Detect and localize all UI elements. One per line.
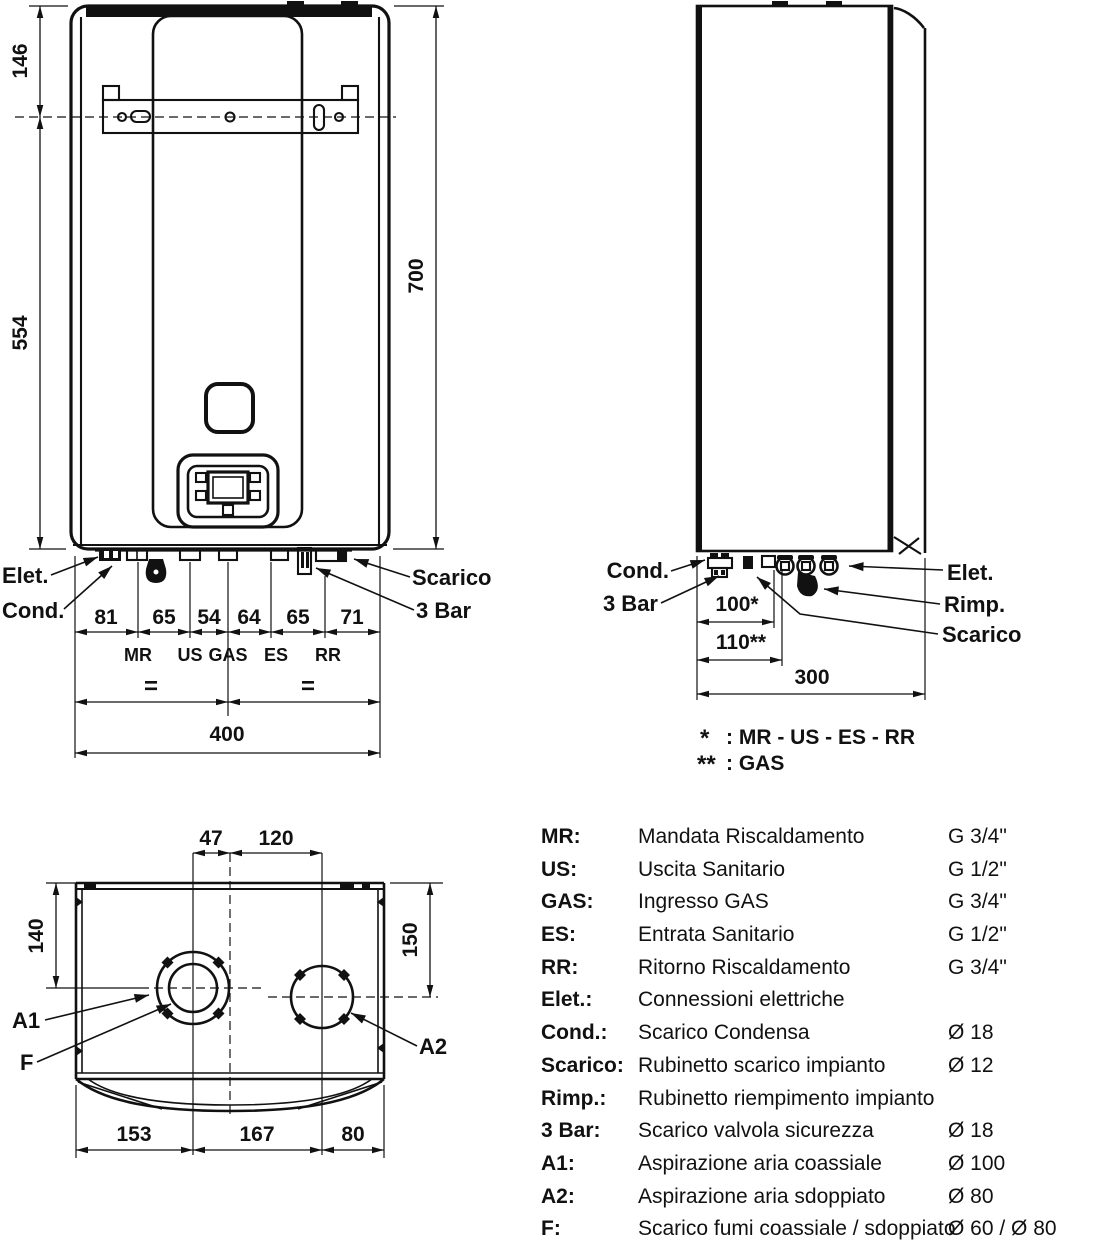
legend-size: Ø 18 (948, 1115, 1098, 1148)
legend-desc: Scarico Condensa (638, 1017, 948, 1050)
side-view: 100* 110** 300 Cond. 3 Bar Elet. Rimp. S… (603, 1, 1022, 778)
callout-3bar: 3 Bar (416, 598, 471, 623)
rimp-tap (797, 572, 818, 596)
legend-desc: Scarico valvola sicurezza (638, 1115, 948, 1148)
front-connections (95, 548, 352, 583)
scarico-spout (743, 556, 753, 569)
legend-row: 3 Bar:Scarico valvola sicurezzaØ 18 (541, 1115, 1098, 1148)
sight-window (206, 384, 253, 432)
side-notes: * : MR - US - ES - RR ** : GAS (697, 725, 915, 778)
dim-54: 54 (197, 606, 221, 629)
legend-size: G 3/4" (948, 886, 1098, 919)
dim-167: 167 (239, 1123, 274, 1146)
dim-150: 150 (399, 922, 422, 957)
legend-desc: Ritorno Riscaldamento (638, 952, 948, 985)
dim-100: 100* (715, 593, 759, 616)
legend-size (948, 984, 1098, 1017)
callout-elet: Elet. (2, 563, 48, 588)
top-view: 47 120 140 150 153 167 80 A1 F A2 (12, 827, 447, 1158)
callout-scarico-side: Scarico (942, 622, 1022, 647)
dim-700: 700 (405, 258, 428, 293)
legend-desc: Entrata Sanitario (638, 919, 948, 952)
door-edge-curve (894, 8, 924, 28)
port-label-es: ES (264, 645, 288, 665)
legend-key: GAS: (541, 886, 638, 919)
dim-153: 153 (116, 1123, 151, 1146)
dim-300: 300 (794, 666, 829, 689)
legend-desc: Rubinetto riempimento impianto (638, 1083, 948, 1116)
dim-65a: 65 (152, 606, 176, 629)
note-doublestar-text: : GAS (726, 752, 784, 775)
legend-desc: Aspirazione aria coassiale (638, 1148, 948, 1181)
legend-key: A1: (541, 1148, 638, 1181)
note-star-mark: * (700, 725, 710, 752)
legend-row: A1:Aspirazione aria coassialeØ 100 (541, 1148, 1098, 1181)
legend-key: MR: (541, 821, 638, 854)
callout-f: F (20, 1050, 33, 1075)
equal-sign-right: = (301, 673, 315, 700)
equal-sign-left: = (144, 673, 158, 700)
legend-size: G 3/4" (948, 821, 1098, 854)
legend-row: Rimp.:Rubinetto riempimento impianto (541, 1083, 1098, 1116)
dim-47: 47 (199, 827, 222, 850)
port-label-gas: GAS (208, 645, 247, 665)
legend-size: Ø 60 / Ø 80 (948, 1213, 1098, 1245)
legend-desc: Scarico fumi coassiale / sdoppiato (638, 1213, 948, 1245)
front-panel (153, 16, 302, 527)
legend-key: A2: (541, 1181, 638, 1214)
legend-key: Cond.: (541, 1017, 638, 1050)
legend-key: 3 Bar: (541, 1115, 638, 1148)
note-star-text: : MR - US - ES - RR (726, 726, 915, 749)
legend-desc: Mandata Riscaldamento (638, 821, 948, 854)
panel-button (196, 473, 206, 482)
callout-cond: Cond. (2, 598, 64, 623)
legend-row: Cond.:Scarico CondensaØ 18 (541, 1017, 1098, 1050)
legend-size: Ø 100 (948, 1148, 1098, 1181)
panel-button (250, 491, 260, 500)
panel-button (250, 473, 260, 482)
legend-key: Elet.: (541, 984, 638, 1017)
callout-scarico: Scarico (412, 565, 492, 590)
cond-fitting (708, 558, 732, 568)
callout-3bar-side: 3 Bar (603, 591, 658, 616)
port-nuts (777, 555, 838, 575)
legend-size: G 3/4" (948, 952, 1098, 985)
callout-a2: A2 (419, 1034, 447, 1059)
legend-key: Scarico: (541, 1050, 638, 1083)
legend-row: A2:Aspirazione aria sdoppiatoØ 80 (541, 1181, 1098, 1214)
dim-140: 140 (25, 918, 48, 953)
callout-elet-side: Elet. (947, 560, 993, 585)
dim-65b: 65 (286, 606, 310, 629)
legend-desc: Ingresso GAS (638, 886, 948, 919)
legend-desc: Uscita Sanitario (638, 854, 948, 887)
technical-drawing-page: 146 554 700 81 65 54 64 65 71 MR US GAS … (0, 0, 1100, 1245)
dim-80: 80 (341, 1123, 364, 1146)
legend-desc: Aspirazione aria sdoppiato (638, 1181, 948, 1214)
legend-key: Rimp.: (541, 1083, 638, 1116)
legend-row: MR:Mandata RiscaldamentoG 3/4" (541, 821, 1098, 854)
dim-110: 110** (716, 631, 767, 654)
legend-size: Ø 18 (948, 1017, 1098, 1050)
legend-row: ES:Entrata SanitarioG 1/2" (541, 919, 1098, 952)
dim-146: 146 (9, 43, 32, 78)
legend-row: GAS:Ingresso GASG 3/4" (541, 886, 1098, 919)
legend-key: US: (541, 854, 638, 887)
panel-button (196, 491, 206, 500)
callout-a1: A1 (12, 1008, 40, 1033)
legend-size: Ø 80 (948, 1181, 1098, 1214)
legend-row: Scarico:Rubinetto scarico impiantoØ 12 (541, 1050, 1098, 1083)
note-doublestar-mark: ** (697, 751, 716, 778)
control-panel (178, 455, 278, 527)
port-label-rr: RR (315, 645, 341, 665)
legend-desc: Rubinetto scarico impianto (638, 1050, 948, 1083)
dim-81: 81 (94, 606, 118, 629)
legend-key: ES: (541, 919, 638, 952)
legend-row: F:Scarico fumi coassiale / sdoppiatoØ 60… (541, 1213, 1098, 1245)
3bar-pipe (298, 548, 311, 574)
dim-400: 400 (209, 723, 244, 746)
dim-554: 554 (9, 315, 32, 350)
dim-120: 120 (258, 827, 293, 850)
connection-legend: MR:Mandata RiscaldamentoG 3/4" US:Uscita… (541, 821, 1098, 1245)
front-view: 146 554 700 81 65 54 64 65 71 MR US GAS … (2, 1, 492, 758)
legend-row: US:Uscita SanitarioG 1/2" (541, 854, 1098, 887)
side-view-case (697, 1, 925, 554)
port-label-us: US (177, 645, 202, 665)
legend-size: G 1/2" (948, 854, 1098, 887)
legend-desc: Connessioni elettriche (638, 984, 948, 1017)
legend-key: F: (541, 1213, 638, 1245)
dim-64: 64 (237, 606, 261, 629)
flue-openings (157, 952, 353, 1028)
legend-size: Ø 12 (948, 1050, 1098, 1083)
legend-size: G 1/2" (948, 919, 1098, 952)
top-dimensions: 47 120 140 150 153 167 80 (25, 827, 443, 1158)
legend-size (948, 1083, 1098, 1116)
panel-button (223, 505, 233, 515)
legend-key: RR: (541, 952, 638, 985)
dim-71: 71 (340, 606, 364, 629)
legend-row: RR:Ritorno RiscaldamentoG 3/4" (541, 952, 1098, 985)
callout-rimp-side: Rimp. (944, 592, 1005, 617)
callout-cond-side: Cond. (607, 558, 669, 583)
legend-row: Elet.:Connessioni elettriche (541, 984, 1098, 1017)
port-label-mr: MR (124, 645, 152, 665)
